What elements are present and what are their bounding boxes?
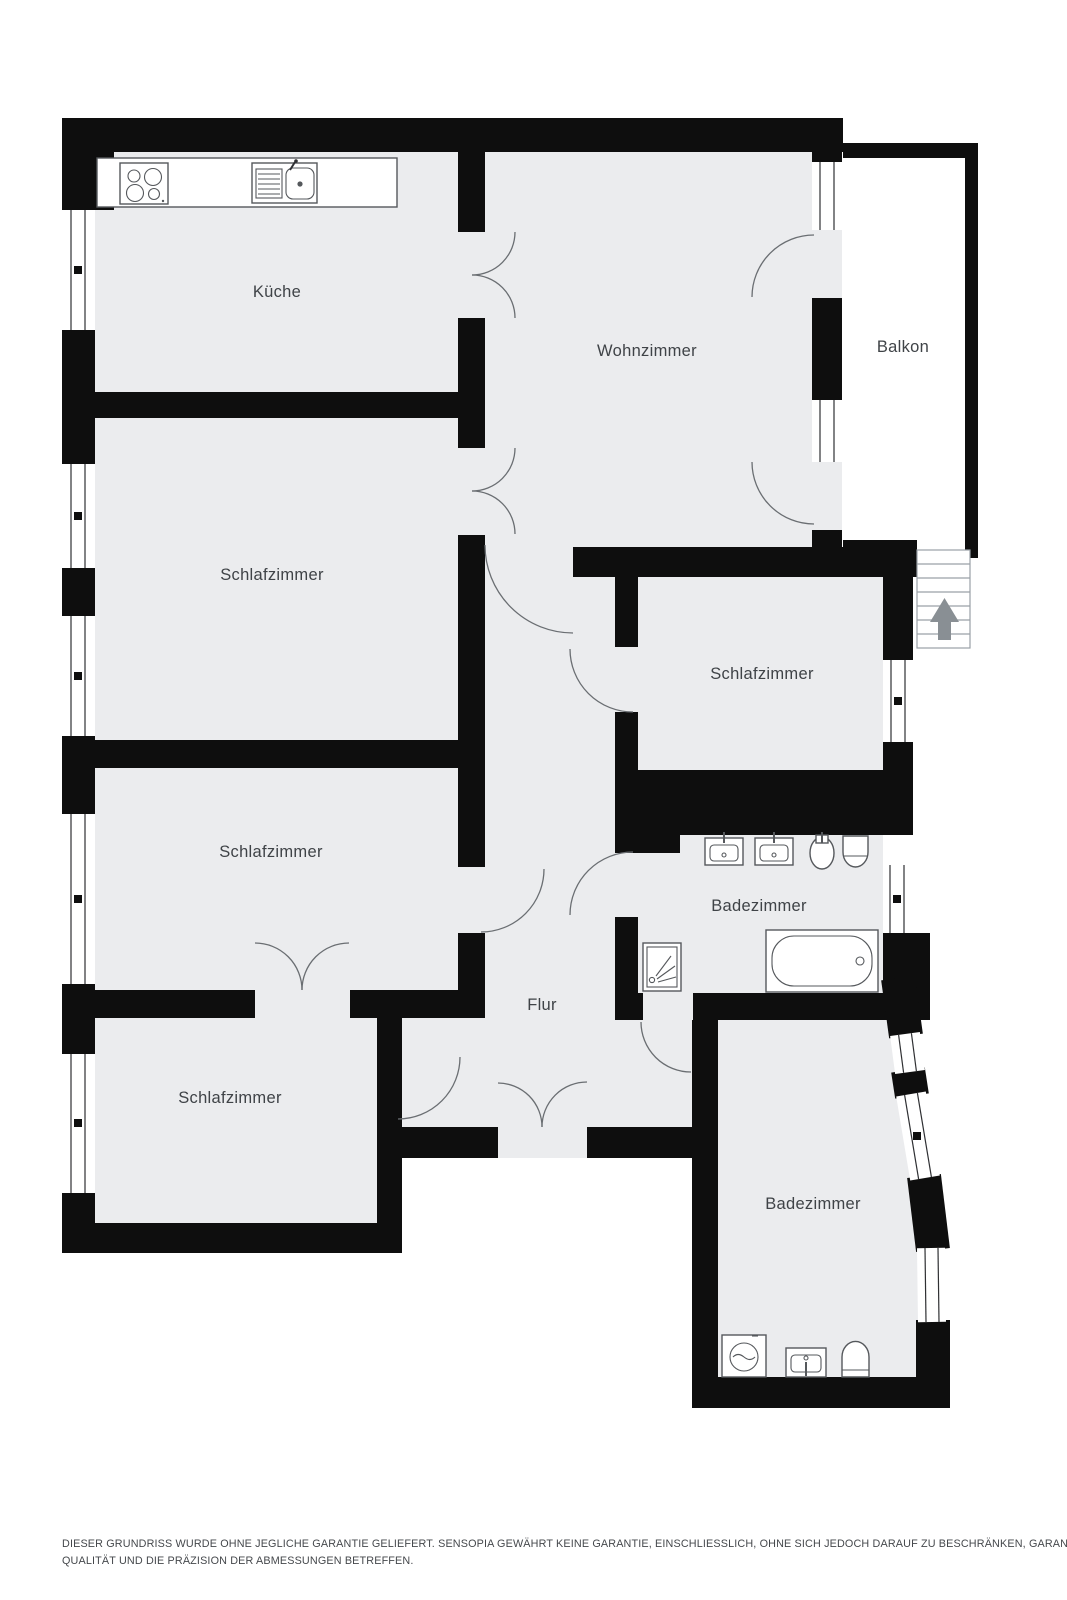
window-balkon-a-icon xyxy=(814,162,840,230)
room-flur-floor-main xyxy=(485,535,615,1018)
window-schlafzimmer1-a-icon xyxy=(64,464,93,568)
window-badezimmer1-icon xyxy=(885,865,909,933)
room-schlafzimmer-3-floor xyxy=(95,1018,377,1223)
kitchen-fixtures xyxy=(97,158,397,207)
window-badezimmer2-slanted-b-icon xyxy=(905,1093,932,1179)
room-label-schlafzimmer-4: Schlafzimmer xyxy=(710,665,814,683)
room-label-schlafzimmer-2: Schlafzimmer xyxy=(219,843,323,861)
floorplan-page: Küche Wohnzimmer Balkon Schlafzimmer Sch… xyxy=(0,0,1067,1600)
floorplan-drawing: Küche Wohnzimmer Balkon Schlafzimmer Sch… xyxy=(0,0,1067,1600)
room-label-schlafzimmer-3: Schlafzimmer xyxy=(178,1089,282,1107)
window-schlafzimmer3-icon xyxy=(64,1054,93,1193)
bathroom-sink-3-icon xyxy=(786,1348,826,1377)
toilet-1-icon xyxy=(843,836,868,867)
room-label-flur: Flur xyxy=(527,996,557,1014)
room-label-schlafzimmer-1: Schlafzimmer xyxy=(220,566,324,584)
disclaimer-line-2: QUALITÄT UND DIE PRÄZISION DER ABMESSUNG… xyxy=(62,1555,414,1567)
room-schlafzimmer-2-floor xyxy=(95,768,458,990)
stairs xyxy=(917,550,970,648)
bathtub-icon xyxy=(766,930,878,992)
window-kueche-icon xyxy=(64,210,93,330)
stove-icon xyxy=(120,163,168,204)
room-label-balkon: Balkon xyxy=(877,338,929,356)
kitchen-sink-icon xyxy=(252,159,317,203)
room-flur-floor-south xyxy=(402,1018,692,1127)
window-balkon-b-icon xyxy=(814,400,840,462)
room-label-wohnzimmer: Wohnzimmer xyxy=(597,342,697,360)
toilet-2-icon xyxy=(842,1341,869,1377)
window-schlafzimmer4-icon xyxy=(885,660,911,742)
shower-icon xyxy=(643,943,681,991)
disclaimer: DIESER GRUNDRISS WURDE OHNE JEGLICHE GAR… xyxy=(62,1538,1067,1567)
disclaimer-line-1: DIESER GRUNDRISS WURDE OHNE JEGLICHE GAR… xyxy=(62,1538,1067,1550)
window-schlafzimmer1-b-icon xyxy=(64,616,93,736)
room-label-badezimmer-1: Badezimmer xyxy=(711,897,807,915)
window-badezimmer2-c-icon xyxy=(925,1248,939,1322)
window-schlafzimmer2-icon xyxy=(64,814,93,984)
room-label-badezimmer-2: Badezimmer xyxy=(765,1195,861,1213)
washing-machine-icon xyxy=(722,1335,766,1377)
window-badezimmer2-slanted-a-icon xyxy=(899,1033,917,1073)
room-label-kueche: Küche xyxy=(253,283,301,301)
